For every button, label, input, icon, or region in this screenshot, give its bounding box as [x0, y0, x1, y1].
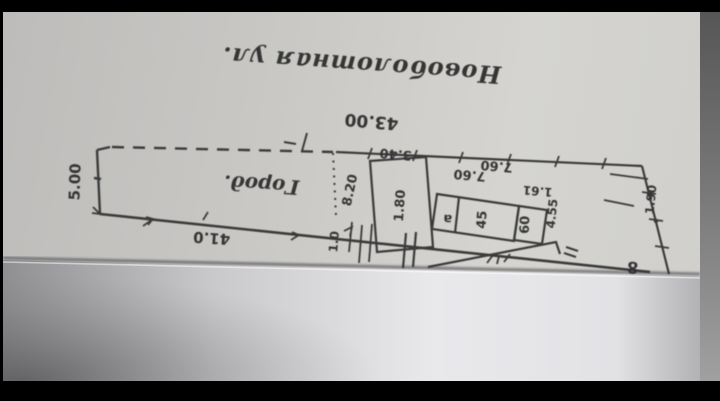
house-partial-outline [403, 232, 560, 268]
frontage-label: 41.0 [193, 228, 231, 249]
right-dim-label: 1.90 [643, 184, 660, 215]
witness-tick [284, 133, 307, 151]
total-width-label: 43.00 [344, 109, 399, 134]
photo-of-plot-sketch: Новоболотная ул. 43.00 5.00 41.0 Город. [0, 0, 720, 401]
shed2-mid-label: 45 [474, 210, 490, 229]
shed1-top-label: 3.40 [379, 145, 412, 163]
shed2-top-right-label: 7.60 [480, 157, 513, 175]
gate-marks [564, 247, 578, 257]
divider-dim-label: 1.0 [326, 230, 342, 252]
shed1-left-label: 8.20 [340, 173, 361, 207]
table-edge-right [700, 12, 720, 381]
corner-shadow-overlay [3, 255, 423, 381]
street-title-handwriting: Новоболотная ул. [221, 41, 503, 89]
left-boundary-line [94, 147, 110, 214]
plot-drawing-svg: Новоболотная ул. 43.00 5.00 41.0 Город. [3, 12, 700, 381]
divider-foot-lines [344, 222, 352, 252]
shed2-letter: а [443, 211, 453, 227]
shed1-inside-label: 1.80 [392, 189, 409, 222]
garden-area-label: Город. [223, 170, 301, 199]
letterbox-left [0, 0, 3, 401]
upper-paper-sheet: Новоболотная ул. 43.00 5.00 41.0 Город. [3, 12, 700, 381]
shed2-box-label: 60 [518, 216, 534, 235]
rear-boundary-dashed-line [112, 147, 333, 152]
annex-top-label: 1.61 [522, 183, 553, 200]
letterbox-top [0, 0, 720, 12]
left-depth-label: 5.00 [65, 163, 84, 201]
boundary-dot [654, 219, 658, 223]
garden-divider-dotted-line [333, 153, 336, 216]
annex-side-label: 4.55 [544, 198, 561, 229]
letterbox-bottom [0, 381, 720, 401]
